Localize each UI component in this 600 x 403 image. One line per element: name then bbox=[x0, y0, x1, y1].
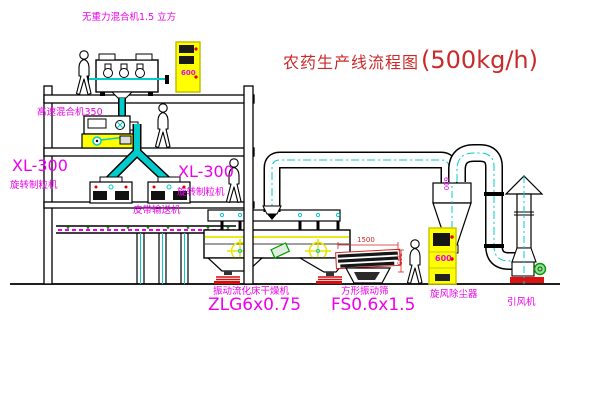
title-capacity: (500kg/h) bbox=[421, 46, 538, 74]
label-xl300-left: XL-300 bbox=[12, 158, 68, 174]
label-granulator-right: 旋转制粒机 bbox=[177, 188, 225, 198]
spring-mounts bbox=[214, 271, 342, 284]
induced-draft-fan bbox=[506, 176, 546, 284]
label-fan: 引风机 bbox=[507, 298, 536, 308]
diagram-canvas: 农药生产线流程图 (500kg/h) 无重力混合机1.5 立方 高速混合机350… bbox=[0, 0, 600, 403]
label-dryer-model: ZLG6x0.75 bbox=[208, 297, 301, 314]
mid-mixer bbox=[82, 116, 138, 148]
control-cabinet-top bbox=[176, 42, 200, 92]
label-sieve-model: FS0.6x1.5 bbox=[331, 297, 415, 314]
dim-cyclone-diameter: 600 bbox=[442, 177, 449, 190]
granulator-left bbox=[90, 177, 132, 203]
cabinet-right-readout: 600 bbox=[435, 255, 452, 263]
label-cyclone: 旋风除尘器 bbox=[430, 290, 478, 300]
dim-sieve-length: 1500 bbox=[357, 237, 375, 244]
diagram-title: 农药生产线流程图 (500kg/h) bbox=[283, 46, 538, 74]
building-column bbox=[244, 86, 253, 284]
label-xl300-right: XL-300 bbox=[178, 164, 234, 180]
label-belt-conveyor: 皮带输送机 bbox=[133, 206, 181, 216]
fluid-bed-dryer bbox=[204, 210, 350, 284]
title-text: 农药生产线流程图 bbox=[283, 49, 419, 73]
dim-sieve-height: 345 bbox=[396, 253, 403, 265]
label-granulator-left: 旋转制粒机 bbox=[10, 181, 58, 191]
cabinet-top-readout: 600 bbox=[181, 70, 196, 77]
label-gravity-free-mixer: 无重力混合机1.5 立方 bbox=[82, 13, 176, 23]
label-mid-mixer: 高速混合机350 bbox=[37, 108, 103, 118]
